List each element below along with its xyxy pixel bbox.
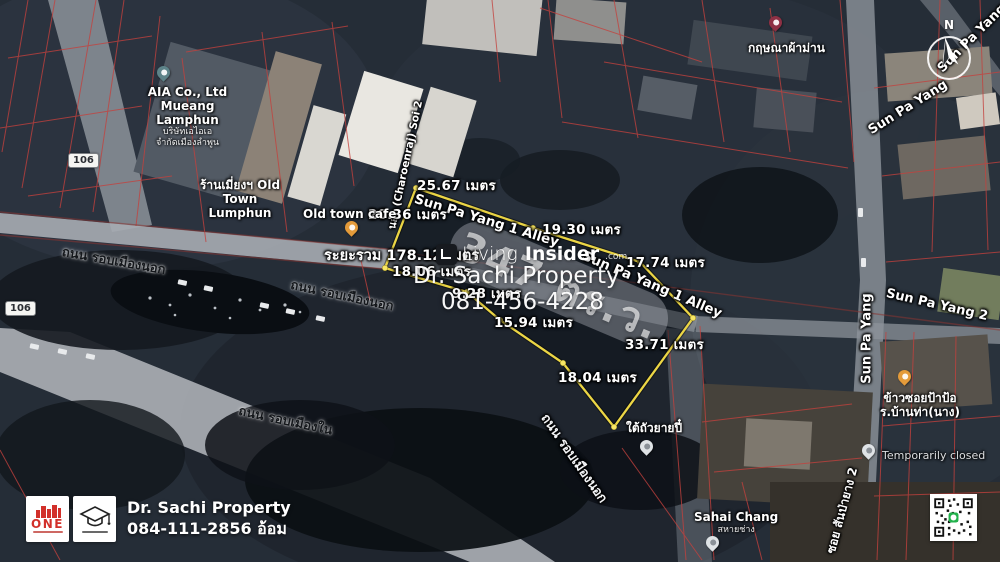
poi-old-town-shop-line2: Town Lumphun <box>209 192 272 220</box>
poi-sahai-chang-en: Sahai Chang <box>694 510 778 524</box>
segment-length-label: 18.04 เมตร <box>558 366 637 388</box>
line-qr-code <box>930 494 977 541</box>
poi-sahai-chang-th: สหายช่าง <box>694 525 778 535</box>
land-listing-map: 347 ตร.ว. ถนน รอบเมืองนอก ถนน รอบเมืองนอ… <box>0 0 1000 562</box>
poi-old-town-shop: ร้านเมี่ยงฯ Old Town Lumphun <box>196 179 284 220</box>
poi-tai-thua: ใต้ถัวยายปี๋ <box>626 422 682 436</box>
one-logo-text: ONE <box>31 519 64 530</box>
graduation-cap-icon <box>79 506 111 530</box>
compass: N <box>916 18 982 88</box>
footer-agent-name: Dr. Sachi Property <box>127 498 291 517</box>
segment-length-label: 17.74 เมตร <box>626 251 705 273</box>
poi-khao-soi-line1: ข้าวซอยป้าป้อ <box>883 391 956 405</box>
poi-sahai-chang: Sahai Chang สหายช่าง <box>694 511 778 535</box>
segment-length-label: 25.67 เมตร <box>417 174 496 196</box>
one-logo-tagline <box>33 531 63 533</box>
poi-aia-sub1: บริษัทเอไอเอ <box>130 127 245 137</box>
brand-insider: Insider <box>525 243 599 265</box>
poi-khao-soi: ข้าวซอยป้าป้อ ร.บ้านท่า(นาง) <box>878 392 962 420</box>
livinginsider-logo-icon <box>436 244 457 265</box>
highway-shield-106-b: 106 <box>5 301 36 316</box>
poi-aia-line2: Mueang Lamphun <box>156 99 218 127</box>
poi-old-town-shop-line1: ร้านเมี่ยงฯ Old <box>200 178 280 192</box>
qr-pattern-icon <box>933 497 974 538</box>
highway-shield-106-a: 106 <box>68 153 99 168</box>
segment-length-label: 19.30 เมตร <box>542 218 621 240</box>
one-agency-logo: ONE <box>26 496 69 542</box>
segment-length-label: 33.71 เมตร <box>625 333 704 355</box>
poi-aia: AIA Co., Ltd Mueang Lamphun บริษัทเอไอเอ… <box>130 86 245 148</box>
brand-living: Living <box>462 243 518 265</box>
compass-north-label: N <box>944 18 954 32</box>
watermark-agent-name: Dr. Sachi Property <box>413 263 620 289</box>
poi-aia-sub2: จำกัดเมืองลำพูน <box>130 138 245 148</box>
footer-agent-phone: 084-111-2856 อ้อม <box>127 517 287 542</box>
road-label-sun-pa-yang-vertical: Sun Pa Yang <box>860 289 875 389</box>
dr-sachi-logo <box>73 496 116 542</box>
watermark-agent-phone: 081-456-4228 <box>441 289 604 315</box>
livinginsider-watermark: LivingInsider.com <box>436 243 627 265</box>
dr-sachi-logo-tagline <box>82 531 108 533</box>
poi-kritsana-curtains: กฤษณาผ้าม่าน <box>748 42 825 56</box>
poi-aia-line1: AIA Co., Ltd <box>148 85 228 99</box>
poi-temporarily-closed: Temporarily closed <box>882 450 985 463</box>
poi-khao-soi-line2: ร.บ้านท่า(นาง) <box>880 405 960 419</box>
